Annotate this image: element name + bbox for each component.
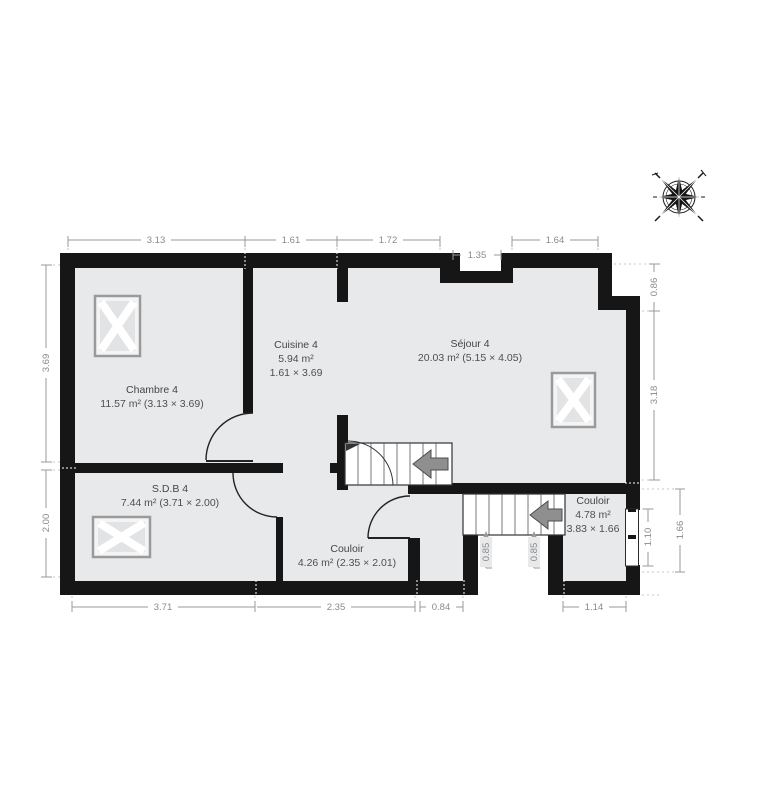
window-sdb [93, 517, 150, 557]
wall-bottom-left [60, 581, 463, 595]
wall-entry-block-left [463, 535, 478, 595]
wall-right-main [626, 296, 640, 486]
room-area-chambre: 11.57 m² (3.13 × 3.69) [100, 398, 203, 410]
window-couloir [626, 509, 639, 566]
dim-right-1: 0.86 [649, 278, 660, 297]
wall-notch-right [501, 253, 513, 283]
room-label-sejour: Séjour 4 [450, 338, 489, 350]
dim-top-4: 1.35 [468, 250, 487, 261]
dim-window-166: 1.66 [675, 521, 686, 540]
window-sejour [552, 373, 595, 427]
wall-entry-block-right [548, 535, 563, 595]
wall-right-upper [598, 253, 612, 303]
room-area-cuisine: 5.94 m² [278, 353, 314, 365]
dim-left-2: 2.00 [41, 514, 52, 533]
dim-top-3: 1.72 [379, 235, 398, 246]
dim-window-110: 1.10 [643, 528, 654, 547]
wall-bottom-right [563, 581, 640, 595]
room-label-couloir-2: Couloir [576, 495, 610, 507]
dim-top-1: 3.13 [147, 235, 166, 246]
room-label-couloir: Couloir [330, 543, 364, 555]
room-label-chambre: Chambre 4 [126, 384, 178, 396]
wall-sdb-couloir [276, 517, 283, 583]
dim-bottom-1: 3.71 [154, 602, 173, 613]
wall-couloir-right [408, 538, 420, 595]
room-label-cuisine: Cuisine 4 [274, 339, 318, 351]
dim-inner-1: 0.85 [481, 543, 492, 562]
dim-top-5: 1.64 [546, 235, 565, 246]
stairs-upper [345, 441, 452, 485]
dim-bottom-4: 1.14 [585, 602, 604, 613]
room-size-cuisine: 1.61 × 3.69 [270, 367, 323, 379]
wall-stub-top [337, 262, 348, 302]
floor-plan-canvas: 3.13 1.61 1.72 1.35 1.64 3.69 2.00 0.86 … [0, 0, 768, 795]
stairs-lower [463, 494, 565, 535]
wall-chambre-sdb [60, 463, 283, 473]
floor-plan-drawing: 3.13 1.61 1.72 1.35 1.64 3.69 2.00 0.86 … [0, 0, 768, 795]
room-area-sdb: 7.44 m² (3.71 × 2.00) [121, 497, 219, 509]
wall-top-right [502, 253, 612, 268]
room-area-sejour: 20.03 m² (5.15 × 4.05) [418, 352, 522, 364]
room-label-sdb: S.D.B 4 [152, 483, 188, 495]
dim-right-2: 3.18 [649, 386, 660, 405]
room-area-couloir-2: 4.78 m² [575, 509, 611, 521]
compass-rose-icon [642, 160, 716, 234]
wall-left [60, 253, 75, 595]
dim-bottom-3: 0.84 [432, 602, 451, 613]
window-chambre [95, 296, 140, 356]
dim-inner-2: 0.85 [529, 543, 540, 562]
dim-bottom-2: 2.35 [327, 602, 346, 613]
room-size-couloir-2: 3.83 × 1.66 [567, 523, 620, 535]
dim-left-1: 3.69 [41, 354, 52, 373]
room-area-couloir: 4.26 m² (2.35 × 2.01) [298, 557, 396, 569]
wall-chambre-cuisine [243, 262, 253, 413]
dim-top-2: 1.61 [282, 235, 301, 246]
wall-right-couloir-upper [626, 482, 640, 510]
wall-stub-nub [330, 463, 337, 473]
